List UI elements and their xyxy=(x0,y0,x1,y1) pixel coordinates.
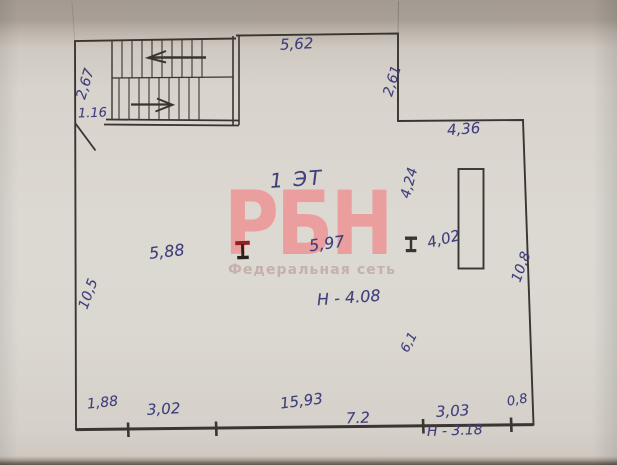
dim-bottom-seg-1: 1,88 xyxy=(86,394,118,411)
dim-upper-right-wall: 4,36 xyxy=(447,121,481,138)
door-swing-stroke xyxy=(76,124,96,151)
paper-background: РБН Федеральная сеть xyxy=(0,0,617,465)
dim-bottom-seg-2: 3,02 xyxy=(147,401,181,418)
dim-bottom-seg-4: 3,03 xyxy=(436,403,470,420)
stair-arrow-left-icon xyxy=(148,51,206,63)
height-note-right-zone: Н - 3.18 xyxy=(427,423,483,439)
stair-arrow-right-icon xyxy=(131,99,173,112)
staircase xyxy=(104,36,239,126)
outer-walls xyxy=(75,34,534,430)
duct-rectangle xyxy=(459,169,484,269)
dim-top-wall: 5,62 xyxy=(280,36,314,53)
dim-stair-opening: 1.16 xyxy=(78,106,107,120)
height-note-hall: Н - 4.08 xyxy=(317,288,382,308)
column-i-beam-icon-left xyxy=(235,241,250,260)
dim-column-span-left: 5,88 xyxy=(148,242,185,262)
dim-bottom-seg-3: 7.2 xyxy=(346,411,370,427)
column-i-beam-icon-right xyxy=(405,237,417,253)
dim-bottom-seg-5: 0,8 xyxy=(506,392,529,408)
floor-label: 1 ЭТ xyxy=(269,167,324,191)
